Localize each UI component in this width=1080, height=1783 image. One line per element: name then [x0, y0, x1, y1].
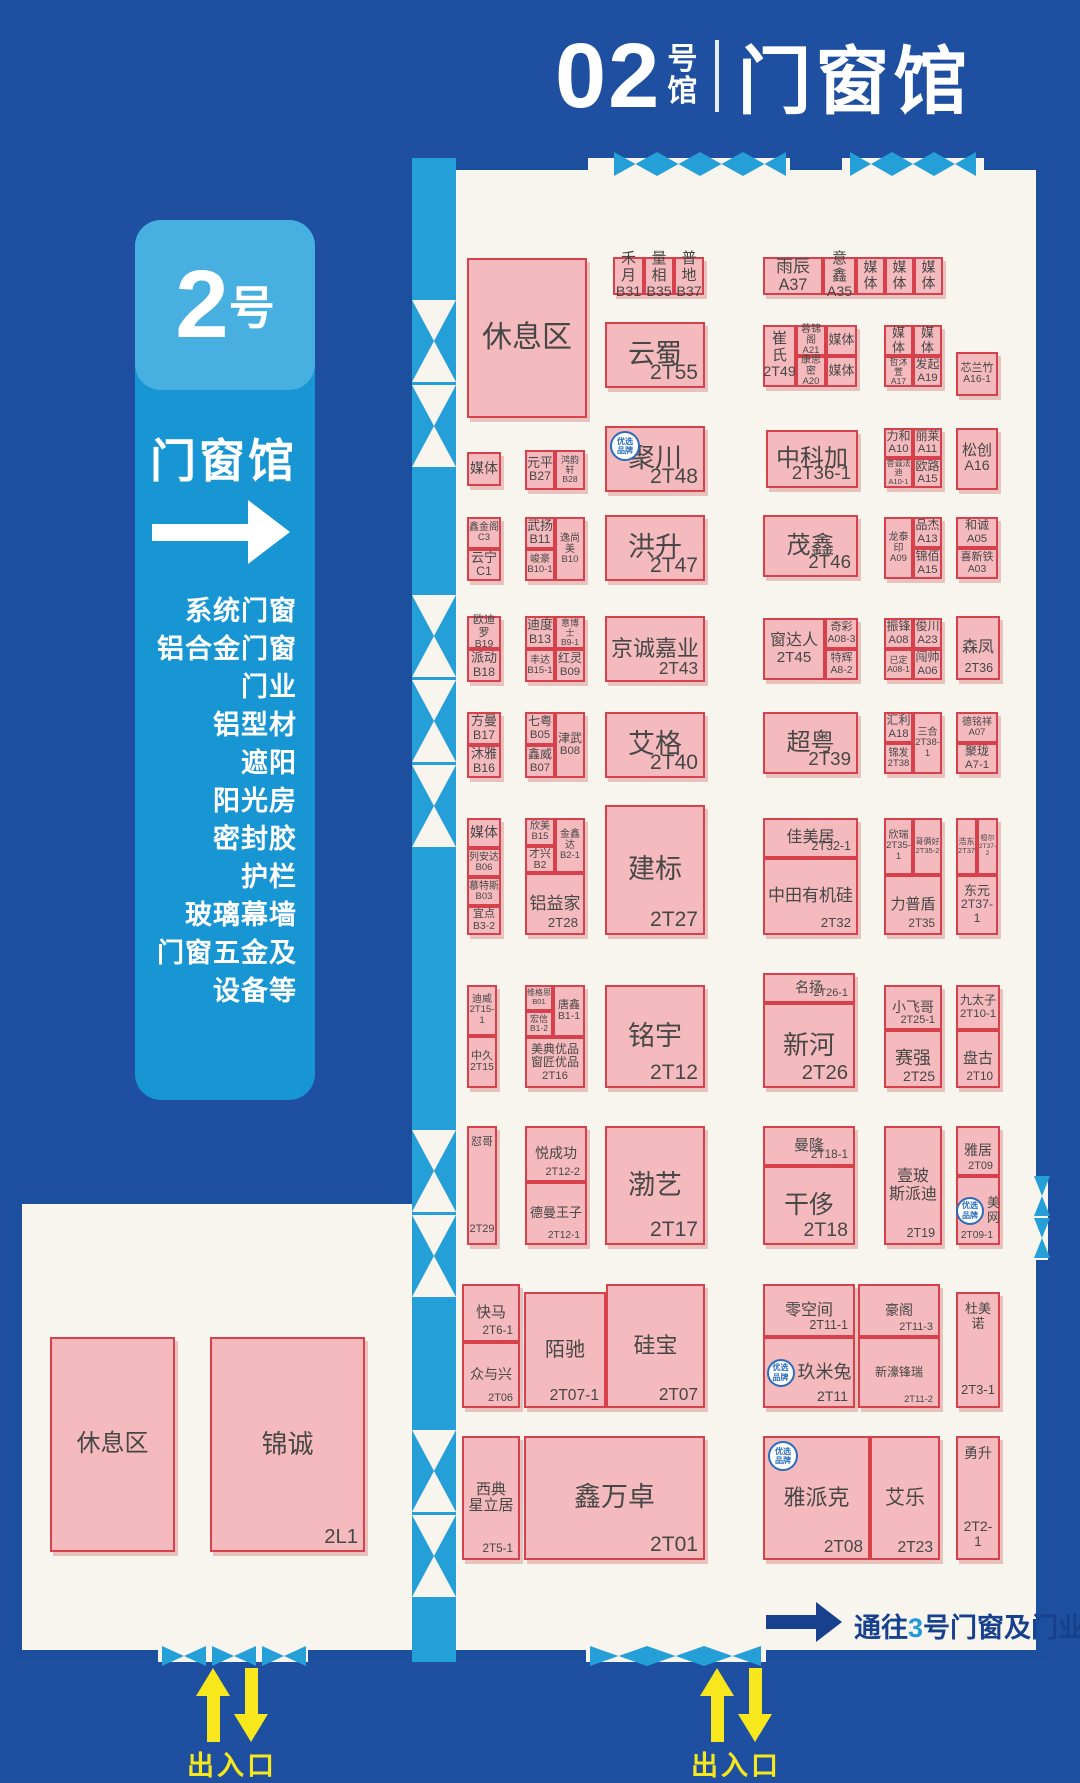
sidebar-category-list: 系统门窗铝合金门窗门业铝型材遮阳阳光房密封胶护栏玻璃幕墙门窗五金及设备等: [135, 592, 297, 1010]
booth-name: 悦成功: [535, 1146, 577, 1161]
booth-code: A06: [917, 665, 937, 678]
booth-code: 2T47: [650, 554, 698, 577]
booth-name: 龙泰印: [886, 532, 911, 554]
booth-code: A15: [917, 473, 937, 486]
booth-code: 2T37: [958, 847, 975, 856]
booth-2T6-1: 快马2T6-1: [462, 1284, 520, 1342]
booth-name: 宜点: [473, 908, 495, 920]
sidebar-hall-name: 门窗馆: [150, 425, 297, 491]
booth-B11: 武扬B11: [525, 517, 555, 549]
booth-name: 意博士: [557, 618, 583, 638]
booth: 休息区: [50, 1337, 175, 1552]
booth-code: B27: [529, 470, 551, 484]
booth-2T09-1: 优选品牌美网2T09-1: [956, 1176, 1000, 1245]
booth-code: A08: [888, 634, 908, 647]
booth-code: 2T18: [804, 1220, 848, 1241]
booth-name: 丽莱: [915, 430, 939, 443]
booth-code: A8-2: [830, 665, 852, 677]
booth-A08: 振锋A08: [884, 618, 913, 649]
booth-name: 俊川: [915, 620, 939, 633]
booth-name: 艾乐: [885, 1487, 925, 1509]
booth-2T25: 赛强2T25: [884, 1030, 942, 1088]
booth-name: 玖米兔: [798, 1363, 852, 1383]
booth-A16: 松创A16: [956, 428, 998, 490]
main-hall-left-wall: [388, 158, 412, 1192]
booth-name: 欧迪罗: [469, 614, 499, 639]
booth-name: 森凤: [962, 639, 994, 657]
booth-code: B37: [676, 285, 701, 301]
booth-2T09: 雅居2T09: [956, 1126, 1000, 1176]
booth-name: 七粤: [528, 715, 552, 728]
booth-2T29: 怼哥2T29: [467, 1126, 497, 1245]
booth: 媒体: [826, 325, 857, 356]
booth-name: 赛强: [895, 1049, 931, 1069]
booth-2T28: 铝益家2T28: [525, 873, 585, 935]
booth-name: 豪阁: [885, 1303, 913, 1318]
booth-A37: 雨辰A37: [763, 257, 823, 295]
booth-B31: 禾月B31: [613, 257, 644, 295]
booth-name: 聚珑: [965, 745, 989, 758]
booth-2T12: 铭宇2T12: [605, 985, 705, 1088]
booth-name: 媒体: [828, 333, 854, 348]
booth-A20: 康思密A20: [796, 356, 826, 387]
booth-code: 2T10: [966, 1071, 993, 1084]
booth-2T45: 窗达人2T45: [763, 618, 825, 680]
booth-name: 杜美诺: [960, 1302, 996, 1331]
booth-name: 量相: [646, 251, 672, 285]
booth-code: A23: [917, 634, 937, 647]
sidebar-category: 护栏: [135, 858, 297, 896]
booth-code: A10-1: [888, 478, 908, 487]
booth-2T32-1: 佳美居2T32-1: [763, 818, 858, 858]
sidebar-category: 遮阳: [135, 744, 297, 782]
booth-2T25-1: 小飞哥2T25-1: [884, 985, 942, 1030]
booth-code: 2T10-1: [960, 1008, 996, 1021]
booth: 媒体: [884, 325, 913, 356]
booth-code: A07: [969, 728, 986, 739]
booth-name: 媒体: [886, 326, 911, 355]
booth-2T16: 美典优品 窗匠优品2T16: [525, 1037, 585, 1088]
booth-name: 逸尚美: [557, 533, 583, 555]
booth-name: 迪度: [527, 618, 553, 633]
booth-B16: 沐雅B16: [467, 745, 501, 778]
booth-code: B3-2: [473, 921, 495, 933]
booth-name: 中久: [471, 1050, 493, 1062]
booth-code: B09: [560, 666, 580, 679]
booth-B01: 维格思B01: [525, 985, 553, 1011]
booth-B10: 逸尚美B10: [555, 517, 585, 581]
booth-name: 红灵: [558, 652, 582, 665]
booth-A17: 哲沐萱A17: [884, 356, 913, 387]
booth-2T37-2: 桓尔2T37-2: [977, 818, 998, 875]
booth-name: 铭宇: [628, 1022, 682, 1052]
booth-A11: 丽莱A11: [913, 428, 942, 458]
booth-name: 干侈: [784, 1192, 834, 1220]
booth-code: 2T36-1: [792, 463, 851, 484]
booth-B3-2: 宜点B3-2: [467, 906, 501, 935]
booth-name: 西典 星立居: [468, 1482, 513, 1515]
booth-name: 品杰: [915, 519, 939, 532]
booth-A03: 喜新铁A03: [956, 548, 998, 579]
booth: 休息区: [467, 258, 587, 418]
booth-name: 渤艺: [628, 1171, 682, 1201]
hall-number: 02: [555, 30, 661, 122]
booth-A7-1: 聚珑A7-1: [956, 743, 998, 774]
booth-code: A08-1: [887, 665, 910, 675]
booth-2T11: 优选品牌玖米兔2T11: [763, 1337, 855, 1408]
booth-name: 发起: [915, 358, 939, 371]
booth-name: 沐雅: [471, 747, 497, 762]
booth-code: 2T25-1: [900, 1014, 935, 1026]
booth-2T40: 艾格2T40: [605, 712, 705, 778]
booth-2T08: 优选品牌雅派克2T08: [763, 1436, 870, 1560]
booth-name: 小飞哥: [892, 1000, 934, 1015]
booth-C3: 鑫金阁C3: [467, 517, 501, 549]
booth-2T18: 干侈2T18: [763, 1166, 855, 1245]
booth-code: 2T5-1: [482, 1543, 513, 1556]
booth-code: A05: [967, 533, 987, 546]
to-hall3-note: 通往3号门窗及门业馆: [766, 1598, 1056, 1646]
booth-code: A16: [964, 459, 989, 475]
booth-code: 2T32: [821, 916, 851, 931]
booth-code: 2T48: [650, 465, 698, 488]
sidebar-category: 门业: [135, 668, 297, 706]
booth-code: A20: [803, 377, 820, 388]
booth-2T37: 浩东2T37: [956, 818, 977, 875]
booth-code: A7-1: [965, 759, 989, 772]
booth: 媒体: [856, 257, 885, 295]
booth-code: B2: [534, 860, 547, 872]
page-title: 02 号 馆 门窗馆: [555, 22, 971, 129]
booth-A10: 力和A10: [884, 428, 913, 458]
booth-2T35: 力普盾2T35: [884, 875, 942, 935]
booth-name: 武扬: [527, 519, 553, 534]
booth-2T36-1: 中科加2T36-1: [766, 430, 858, 488]
booth-2T32: 中田有机硅2T32: [763, 858, 858, 935]
booth-code: A19: [917, 372, 937, 385]
booth-code: 2T12-2: [545, 1166, 580, 1178]
booth-2T23: 艾乐2T23: [870, 1436, 940, 1560]
booth-name: 派动: [471, 651, 497, 666]
booth-2T18-1: 曼隆2T18-1: [763, 1126, 855, 1166]
booth-A19: 发起A19: [913, 356, 942, 387]
booth-code: B35: [646, 285, 671, 301]
booth-A35: 意鑫A35: [823, 257, 856, 295]
booth-B07: 鑫威B07: [525, 745, 555, 778]
booth-code: 2T15-1: [469, 1005, 495, 1026]
booth-code: 2T46: [808, 552, 851, 573]
booth-code: B10-1: [527, 565, 552, 576]
booth-code: 2T32-1: [811, 840, 851, 854]
booth-code: 2T19: [907, 1227, 935, 1241]
booth-name: 普地: [676, 251, 702, 285]
booth-name: 云宁: [471, 551, 497, 566]
booth-code: B07: [530, 762, 550, 775]
booth-2T15: 中久2T15: [467, 1036, 497, 1088]
booth-name: 怼哥: [471, 1136, 493, 1148]
exit-down-arrow-icon: [738, 1668, 772, 1744]
booth-code: 2T40: [650, 751, 698, 774]
booth-2T3-1: 杜美诺2T3-1: [956, 1292, 1000, 1408]
booth-name: 力普盾: [890, 897, 935, 914]
booth-name: 鑫万卓: [574, 1483, 655, 1513]
booth-2T43: 京诚嘉业2T43: [605, 616, 705, 682]
booth-code: 2L1: [324, 1526, 358, 1548]
booth-B05: 七粤B05: [525, 712, 555, 745]
booth-name: 新河: [783, 1031, 835, 1060]
booth-code: 2T23: [897, 1539, 933, 1556]
booth-name: 新濠锋瑞: [875, 1366, 923, 1379]
booth-A13: 品杰A13: [913, 517, 942, 548]
booth-code: 2T37-1: [958, 898, 996, 926]
booth-code: 2T3-1: [961, 1383, 995, 1398]
booth-name: 中田有机硅: [768, 887, 853, 906]
booth-code: B31: [616, 285, 641, 301]
booth-A21: 蓉锦阁A21: [796, 325, 826, 356]
booth-code: 2T11-1: [809, 1319, 848, 1333]
quality-badge-icon: 优选品牌: [767, 1359, 795, 1387]
booth-code: 2T12: [650, 1061, 698, 1084]
booth-code: A15: [917, 564, 937, 577]
booth-code: C1: [476, 565, 492, 579]
booth-name: 蓉锦阁: [798, 324, 824, 346]
booth-2T10-1: 九太子2T10-1: [956, 985, 1000, 1030]
booth-2T07: 硅宝2T07: [606, 1284, 705, 1408]
booth-2T26: 新河2T26: [763, 1003, 855, 1088]
booth-code: 2T06: [488, 1392, 513, 1404]
booth-code: 2T37-2: [979, 843, 996, 858]
booth-name: 和诚: [965, 519, 989, 532]
booth: 媒体: [467, 452, 501, 486]
quality-badge-icon: 优选品牌: [610, 431, 640, 461]
booth-code: A08-3: [828, 634, 856, 646]
booth-name: 勇升: [964, 1446, 992, 1462]
booth-A08-1: 已定A08-1: [884, 649, 913, 680]
booth-name: 美典优品 窗匠优品: [531, 1043, 579, 1070]
booth-2T35-2: 哥俩好2T35-2: [913, 818, 942, 875]
booth-name: 雅派克: [783, 1486, 849, 1510]
zone-number-suffix: 号: [229, 272, 275, 338]
booth-A10-1: 菩诚法迪A10-1: [884, 458, 913, 488]
booth-name: 松创: [962, 443, 992, 460]
booth-code: A09: [890, 554, 907, 565]
booth-code: B01: [532, 998, 546, 1007]
booth-code: 2T2-1: [960, 1519, 996, 1550]
sidebar-category: 门窗五金及设备等: [135, 934, 297, 1010]
booth-name: 哲沐萱: [886, 357, 911, 377]
booth-A8-2: 特辉A8-2: [825, 649, 858, 680]
booth-code: B1-1: [558, 1011, 580, 1023]
booth-code: B11: [529, 533, 550, 547]
booth-code: 2T09-1: [961, 1230, 993, 1241]
booth-B2: 才兴B2: [525, 846, 555, 873]
booth-name: 盘古: [963, 1051, 993, 1068]
booth-code: 2T38-1: [915, 738, 940, 759]
booth-name: 快马: [476, 1305, 506, 1322]
sidebar-category: 玻璃幕墙: [135, 896, 297, 934]
booth-name: 元平: [527, 456, 553, 471]
booth-name: 媒体: [470, 461, 498, 477]
booth-code: A10: [888, 443, 908, 456]
booth-code: 2T35-1: [886, 841, 911, 862]
booth-name: 壹玻 斯派迪: [889, 1168, 937, 1203]
exit-label-left: 出入口: [162, 1744, 302, 1783]
booth-name: 喜新铁: [961, 551, 994, 563]
booth-name: 媒体: [828, 364, 854, 379]
booth-name: 零空间: [785, 1302, 833, 1320]
booth-B1-2: 宏信B1-2: [525, 1011, 553, 1037]
booth: 媒体: [913, 325, 942, 356]
booth-2T26-1: 名扬2T26-1: [763, 973, 855, 1003]
booth-code: 2T16: [542, 1070, 568, 1083]
booth-name: 闯帅: [915, 651, 939, 664]
booth-code: 2T26: [802, 1062, 848, 1084]
booth-A08-3: 奇彩A08-3: [825, 618, 858, 649]
booth-A16-1: 芯兰竹A16-1: [956, 352, 998, 396]
booth-2T06: 众与兴2T06: [462, 1342, 520, 1408]
booth-B1-1: 唐鑫B1-1: [553, 985, 585, 1037]
booth-A23: 俊川A23: [913, 618, 942, 649]
booth-B27: 元平B27: [525, 450, 555, 490]
booth-B28: 鸿韵轩B28: [555, 450, 585, 490]
booth-name: 德曼王子: [530, 1206, 582, 1220]
booth-code: B15: [532, 832, 549, 843]
booth-2T55: 云蜀2T55: [605, 322, 705, 388]
booth-code: 2T43: [659, 659, 698, 678]
sidebar-category: 阳光房: [135, 782, 297, 820]
booth-2T17: 渤艺2T17: [605, 1126, 705, 1245]
booth-name: 铝益家: [530, 895, 581, 914]
booth-name: 禾月: [615, 251, 642, 285]
exit-label-right: 出入口: [666, 1744, 806, 1783]
booth-code: B08: [560, 745, 580, 758]
booth-code: A13: [917, 533, 937, 546]
booth-name: 窗达人: [770, 632, 818, 650]
booth-2T01: 鑫万卓2T01: [524, 1436, 705, 1560]
booth-name: 意鑫: [825, 251, 854, 285]
booth-B10-1: 峻豪B10-1: [525, 549, 555, 581]
exit-up-arrow-icon: [196, 1668, 230, 1744]
booth-name: 才兴: [529, 848, 551, 860]
booth-name: 媒体: [915, 326, 940, 355]
booth-B37: 普地B37: [674, 257, 704, 295]
booth-name: 康思密: [798, 355, 824, 377]
booth-name: 锦佰: [915, 550, 939, 563]
title-divider: [715, 40, 719, 112]
booth-A15: 锦佰A15: [913, 548, 942, 579]
sidebar-category: 铝合金门窗: [135, 630, 297, 668]
sidebar-category: 密封胶: [135, 820, 297, 858]
booth-code: 2T07-1: [550, 1387, 599, 1404]
booth-code: B06: [476, 863, 493, 874]
booth: 媒体: [914, 257, 943, 295]
zone-badge: 2 号: [135, 220, 315, 390]
booth-code: 2T11: [817, 1389, 848, 1404]
booth-code: 2T08: [824, 1537, 863, 1556]
booth-code: B2-1: [560, 851, 580, 862]
booth-code: 2T55: [650, 361, 698, 384]
booth-2T2-1: 勇升2T2-1: [956, 1436, 1000, 1560]
booth-name: 津武: [558, 732, 582, 745]
booth-name: 鸿韵轩: [557, 455, 583, 475]
booth-B06: 列安达B06: [467, 848, 501, 877]
booth-C1: 云宁C1: [467, 549, 501, 581]
booth-B09: 红灵B09: [555, 649, 585, 682]
booth-B13: 迪度B13: [525, 616, 555, 649]
booth-code: 2T11-3: [899, 1321, 933, 1333]
booth-code: A16-1: [963, 374, 991, 386]
booth-code: 2T49: [763, 365, 795, 381]
booth-A07: 德铭祥A07: [956, 712, 998, 743]
exit-up-arrow-icon: [700, 1668, 734, 1744]
booth-name: 芯兰竹: [961, 362, 994, 374]
booth-code: 2T35: [908, 918, 935, 931]
booth-name: 菩诚法迪: [886, 460, 911, 478]
booth-2T39: 超粤2T39: [763, 712, 858, 774]
booth-code: B15-1: [527, 666, 552, 677]
booth-B15: 欣美B15: [525, 818, 555, 846]
hall-name: 门窗馆: [737, 22, 971, 129]
booth-2T11-2: 新濠锋瑞2T11-2: [858, 1337, 940, 1408]
booth-code: A03: [968, 564, 987, 576]
booth-name: 桓尔: [981, 835, 995, 843]
arrow-shaft: [766, 1615, 818, 1629]
booth-B15-1: 丰达B15-1: [525, 649, 555, 682]
booth-code: B16: [473, 762, 495, 776]
booth-name: 特辉: [831, 652, 853, 664]
booth-name: 欧路: [915, 460, 939, 473]
booth-code: B10: [562, 555, 579, 566]
booth-name: 美网: [987, 1196, 1000, 1225]
booth-name: 崔氏: [765, 331, 794, 365]
booth-code: C3: [478, 533, 490, 544]
booth-2T07-1: 陌驰2T07-1: [524, 1292, 606, 1408]
booth-name: 雅居: [964, 1143, 992, 1158]
booth-2T11-1: 零空间2T11-1: [763, 1284, 855, 1337]
booth-2T12-1: 德曼王子2T12-1: [525, 1182, 587, 1245]
booth-code: B03: [476, 892, 493, 903]
booth-2T36: 森凤2T36: [956, 616, 1000, 680]
booth-name: 振锋: [886, 620, 910, 633]
booth-name: 硅宝: [633, 1334, 677, 1358]
booth-name: 休息区: [77, 1431, 149, 1458]
booth-code: 2T11-2: [904, 1394, 933, 1404]
booth-2T47: 洪升2T47: [605, 515, 705, 581]
booth-2T15-1: 迪威2T15-1: [467, 985, 497, 1036]
booth-name: 鑫威: [528, 748, 552, 761]
booth-B2-1: 金鑫达B2-1: [555, 818, 585, 873]
booth-2L1: 锦诚2L1: [210, 1337, 365, 1552]
booth-name: 方曼: [471, 714, 497, 729]
booth-B35: 量相B35: [644, 257, 674, 295]
booth-code: 2T29: [469, 1223, 494, 1235]
booth-2T27: 建标2T27: [605, 805, 705, 935]
booth: 媒体: [826, 356, 857, 387]
booth-code: 2T12-1: [548, 1230, 580, 1241]
booth-code: 2T26-1: [813, 987, 848, 999]
booth-code: 2T35-2: [915, 847, 939, 856]
booth-2T35-1: 欣瑞2T35-1: [884, 818, 913, 875]
booth-2T49: 崔氏2T49: [763, 325, 796, 387]
booth-A09: 龙泰印A09: [884, 517, 913, 579]
booth-2T10: 盘古2T10: [956, 1030, 1000, 1088]
booth-2T19: 壹玻 斯派迪2T19: [884, 1126, 942, 1245]
booth-code: A37: [779, 276, 808, 294]
booth-code: 2T25: [903, 1069, 935, 1084]
booth-B17: 方曼B17: [467, 712, 501, 745]
booth-B08: 津武B08: [555, 712, 585, 778]
booth-B18: 派动B18: [467, 649, 501, 682]
